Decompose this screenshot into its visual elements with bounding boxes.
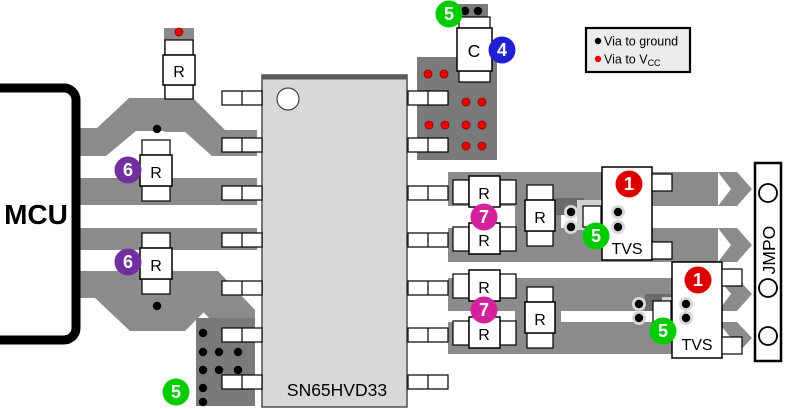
ground-via xyxy=(474,7,482,15)
callout-5: 5 xyxy=(163,379,190,406)
vcc-via xyxy=(462,121,470,129)
ground-via xyxy=(682,314,690,322)
vcc-via xyxy=(424,70,432,78)
resistor-series-b: R xyxy=(140,233,172,294)
resistor-pad xyxy=(500,180,516,204)
callout-1: 1 xyxy=(685,267,712,294)
ground-via xyxy=(567,223,575,231)
resistor-pad xyxy=(527,287,553,302)
legend: Via to ground Via to VCC xyxy=(586,28,690,72)
callout-7: 7 xyxy=(471,204,498,231)
chip-pad-right-6 xyxy=(408,328,448,342)
resistor-pad xyxy=(500,321,516,345)
legend-vcc-subscript: CC xyxy=(648,58,661,68)
chip-pad-left-3 xyxy=(222,186,262,200)
resistor-termination-1: R xyxy=(525,185,555,246)
jmpo-connector: JMPO xyxy=(755,163,781,361)
chip-pad-left-6 xyxy=(222,328,262,342)
vcc-via xyxy=(462,142,470,150)
resistor-pad xyxy=(527,231,553,246)
ground-via xyxy=(234,366,242,374)
callout-7: 7 xyxy=(471,297,498,324)
tvs-label: TVS xyxy=(611,241,642,258)
callout-number: 1 xyxy=(624,174,634,194)
vcc-via xyxy=(478,121,486,129)
resistor-pad xyxy=(165,85,193,99)
vcc-via xyxy=(478,142,486,150)
ground-via xyxy=(153,125,161,133)
resistor-label: R xyxy=(173,64,185,81)
chip-top-edge xyxy=(262,75,407,80)
ground-via xyxy=(567,208,575,216)
resistor-pad xyxy=(500,274,516,298)
chip-pad-left-5 xyxy=(222,281,262,295)
ground-via xyxy=(199,348,207,356)
resistor-pad xyxy=(142,140,170,155)
callout-number: 1 xyxy=(693,270,703,290)
callout-5: 5 xyxy=(650,318,677,345)
resistor-pad xyxy=(453,180,469,204)
tvs-pad xyxy=(652,242,672,259)
ground-via xyxy=(199,384,207,392)
capacitor-pad xyxy=(459,71,490,82)
callout-1: 1 xyxy=(616,171,643,198)
vcc-via-icon xyxy=(595,56,601,62)
connector-hole xyxy=(759,327,777,345)
connector-hole xyxy=(759,184,777,202)
resistor-pad xyxy=(165,40,193,55)
resistor-pad xyxy=(142,186,170,201)
ground-via xyxy=(635,314,643,322)
resistor-pad xyxy=(527,333,553,348)
connector-label: JMPO xyxy=(759,226,779,275)
callout-number: 7 xyxy=(479,300,489,320)
trace-mcu-band-3 xyxy=(72,271,193,298)
chip-pad-left-7 xyxy=(222,375,262,389)
vcc-via xyxy=(175,28,183,36)
mcu-block: MCU xyxy=(0,88,76,340)
tvs-pad xyxy=(722,337,742,354)
resistor-pad xyxy=(142,233,170,248)
ground-via xyxy=(215,366,223,374)
legend-vcc-text: Via to V xyxy=(604,53,648,67)
chip-pad-right-5 xyxy=(408,281,448,295)
chip-label: SN65HVD33 xyxy=(287,380,387,400)
tvs-pad xyxy=(652,174,672,191)
vcc-via xyxy=(478,98,486,106)
callout-number: 5 xyxy=(658,321,668,341)
callout-6: 6 xyxy=(115,157,142,184)
chip-body xyxy=(262,75,407,407)
pcb-layout-diagram: MCU SN65HVD33 R R R xyxy=(0,0,785,409)
vcc-via xyxy=(425,121,433,129)
connector-hole xyxy=(759,279,777,297)
ground-via xyxy=(215,348,223,356)
resistor-label: R xyxy=(534,210,546,227)
chip-pad-left-1 xyxy=(222,91,262,105)
chip-pad-right-4 xyxy=(408,233,448,247)
resistor-pad xyxy=(453,321,469,345)
resistor-label: R xyxy=(534,312,546,329)
callout-number: 5 xyxy=(171,382,181,402)
callout-4: 4 xyxy=(489,37,516,64)
vcc-via xyxy=(440,70,448,78)
legend-ground-label: Via to ground xyxy=(604,35,678,49)
ground-via-icon xyxy=(595,38,601,44)
mcu-label: MCU xyxy=(4,199,68,230)
resistor-label: R xyxy=(478,233,490,250)
chip-pad-right-7 xyxy=(408,375,448,389)
callout-6: 6 xyxy=(115,249,142,276)
capacitor-label: C xyxy=(468,41,481,61)
vcc-via xyxy=(441,121,449,129)
resistor-pad xyxy=(500,227,516,251)
chip-pad-right-2 xyxy=(408,138,448,152)
resistor-top: R xyxy=(163,40,195,99)
ground-via xyxy=(153,302,161,310)
callout-number: 6 xyxy=(123,252,133,272)
trace-arrow-b xyxy=(718,228,752,262)
callout-5: 5 xyxy=(583,223,610,250)
chip-pad-right-3 xyxy=(408,186,448,200)
resistor-label: R xyxy=(478,186,490,203)
callout-number: 5 xyxy=(591,226,601,246)
ground-via xyxy=(199,398,207,406)
resistor-label: R xyxy=(478,280,490,297)
resistor-line-1: R xyxy=(453,176,516,207)
transceiver-chip: SN65HVD33 xyxy=(262,75,407,407)
resistor-series-a: R xyxy=(140,140,172,201)
ground-via xyxy=(614,208,622,216)
resistor-pad xyxy=(527,185,553,200)
callout-5: 5 xyxy=(436,1,463,28)
callout-number: 6 xyxy=(123,160,133,180)
chip-pad-right-1 xyxy=(408,91,448,105)
ground-via xyxy=(234,348,242,356)
resistor-termination-2: R xyxy=(525,287,555,348)
resistor-label: R xyxy=(150,165,162,182)
resistor-line-3: R xyxy=(453,270,516,301)
ground-via xyxy=(614,223,622,231)
tvs-pad xyxy=(722,269,742,286)
resistor-label: R xyxy=(478,327,490,344)
resistor-pad xyxy=(453,227,469,251)
callout-number: 7 xyxy=(479,207,489,227)
ground-via xyxy=(199,366,207,374)
ground-via xyxy=(682,300,690,308)
callout-number: 5 xyxy=(444,4,454,24)
capacitor-pad xyxy=(459,17,490,28)
chip-pad-left-2 xyxy=(222,138,262,152)
tvs-label: TVS xyxy=(681,337,712,354)
bypass-capacitor: C xyxy=(457,17,492,82)
trace-arrow-a xyxy=(718,172,752,206)
chip-pad-left-4 xyxy=(222,233,262,247)
resistor-pad xyxy=(142,279,170,294)
resistor-pad xyxy=(453,274,469,298)
vcc-via xyxy=(462,98,470,106)
pin1-indicator xyxy=(277,88,299,110)
ground-via xyxy=(635,300,643,308)
callout-number: 4 xyxy=(497,40,507,60)
resistor-label: R xyxy=(150,258,162,275)
ground-via xyxy=(199,329,207,337)
